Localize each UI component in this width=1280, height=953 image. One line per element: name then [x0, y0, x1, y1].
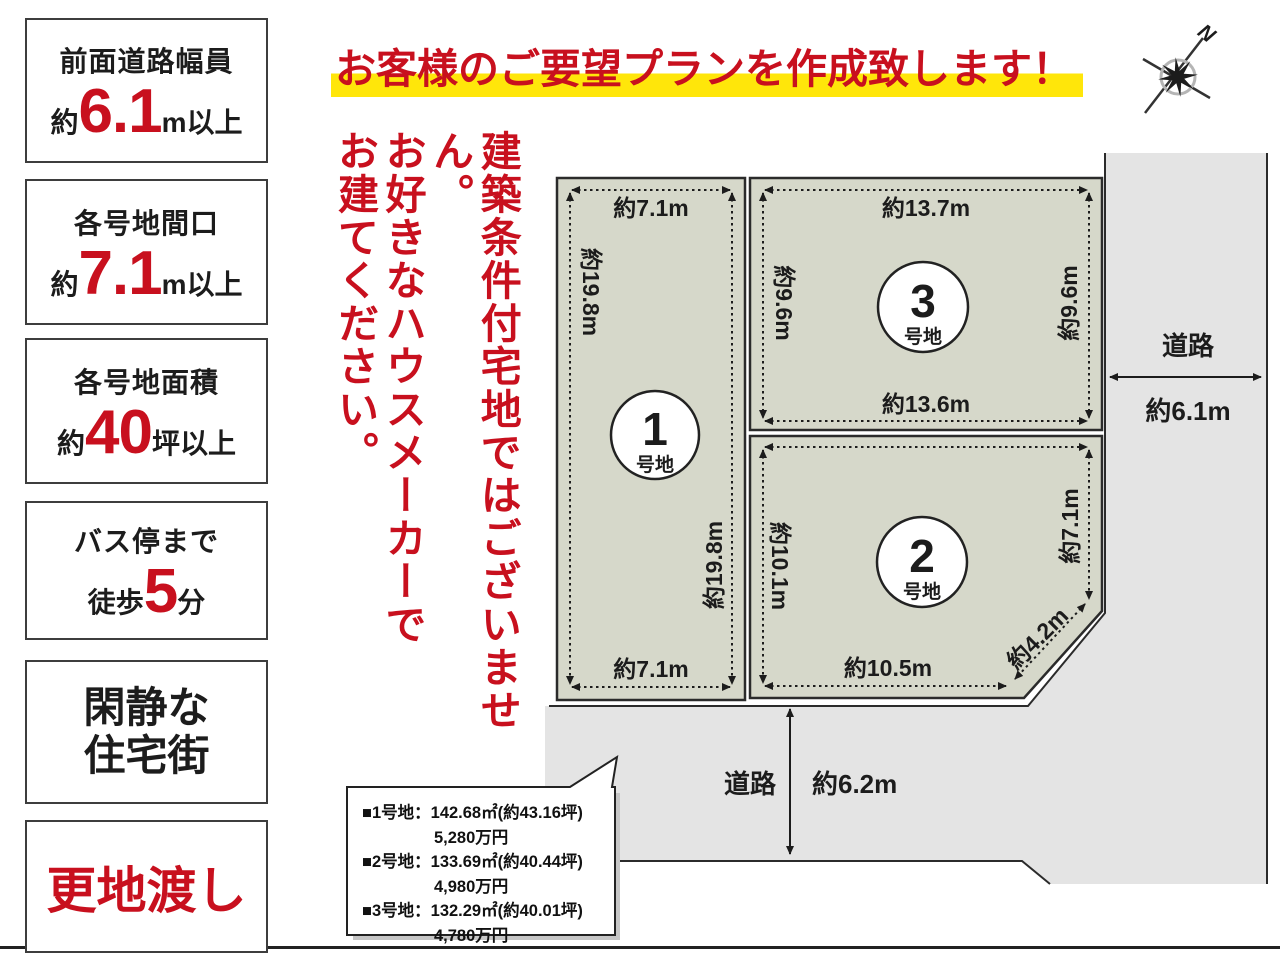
svg-text:2: 2	[909, 530, 935, 582]
plot-1-dim-top: 約7.1m	[613, 195, 688, 221]
road-bottom-width: 約6.2m	[812, 769, 897, 799]
plot-3-dim-right: 約9.6m	[1056, 265, 1082, 340]
feature-value: 約7.1m以上	[50, 246, 242, 303]
banner-text: お客様のご要望プランを作成致します！	[331, 46, 1083, 97]
notice-line-2: お好きなハウスメーカーで	[378, 130, 426, 770]
road-right-width: 約6.1m	[1145, 396, 1230, 426]
plot-1-dim-left: 約19.8m	[578, 248, 604, 336]
feature-red-text: 更地渡し	[47, 851, 247, 923]
vertical-notice: 建築条件付宅地ではございません。 お好きなハウスメーカーで お建てください。	[330, 130, 520, 770]
svg-text:号地: 号地	[636, 453, 674, 476]
feature-line: 閑静な	[83, 684, 209, 732]
svg-text:号地: 号地	[903, 580, 941, 603]
plot-2-dim-right: 約7.1m	[1057, 488, 1083, 563]
feature-title: 各号地間口	[74, 202, 219, 242]
lot-1-price: 5,280万円	[362, 826, 612, 851]
feature-line: 住宅街	[83, 732, 209, 780]
plot-1-badge: 1 号地	[611, 391, 699, 479]
feature-box-frontage: 各号地間口 約7.1m以上	[25, 179, 268, 325]
feature-title: バス停まで	[74, 520, 219, 560]
road-bottom-edge	[545, 861, 1050, 884]
feature-box-area: 各号地面積 約40坪以上	[25, 338, 268, 484]
svg-text:号地: 号地	[904, 325, 942, 348]
lot-1-spec: ■1号地：142.68㎡(約43.16坪)	[362, 801, 612, 826]
feature-title: 前面道路幅員	[59, 40, 233, 80]
compass-icon: N	[1143, 20, 1220, 113]
plot-2-badge: 2 号地	[877, 517, 967, 607]
svg-text:1: 1	[642, 403, 668, 455]
plot-3-dim-left: 約9.6m	[771, 265, 797, 340]
lot-3-spec: ■3号地：132.29㎡(約40.01坪)	[362, 899, 612, 924]
plot-2-dim-left: 約10.1m	[767, 522, 793, 610]
road-right-label: 道路	[1162, 331, 1215, 361]
feature-value: 徒歩5分	[88, 564, 206, 621]
feature-title: 各号地面積	[74, 361, 219, 401]
feature-box-vacant-land: 更地渡し	[25, 820, 268, 953]
feature-box-bus-stop: バス停まで 徒歩5分	[25, 501, 268, 640]
road-bottom-label: 道路	[724, 769, 777, 799]
plot-1-dim-bottom: 約7.1m	[613, 656, 688, 682]
plot-2-dim-bottom: 約10.5m	[844, 655, 932, 681]
feature-box-road-width: 前面道路幅員 約6.1m以上	[25, 18, 268, 163]
feature-value: 約6.1m以上	[50, 84, 242, 141]
feature-box-quiet-area: 閑静な 住宅街	[25, 660, 268, 804]
lot-3-price: 4,780万円	[362, 924, 612, 949]
plot-3-dim-top: 約13.7m	[882, 195, 970, 221]
lot-2-price: 4,980万円	[362, 875, 612, 900]
lot-2-spec: ■2号地：133.69㎡(約40.44坪)	[362, 850, 612, 875]
flyer-page: 約7.1m 約19.8m 約19.8m 約7.1m 約13.7m 約9.6m 約…	[0, 0, 1280, 953]
feature-value: 約40坪以上	[57, 405, 236, 462]
banner-headline: お客様のご要望プランを作成致します！	[331, 35, 1083, 95]
plot-1-dim-right: 約19.8m	[701, 521, 727, 609]
svg-text:3: 3	[910, 275, 936, 327]
notice-line-3: お建てください。	[330, 130, 378, 770]
plot-3-dim-bottom: 約13.6m	[882, 391, 970, 417]
lot-price-list: ■1号地：142.68㎡(約43.16坪) 5,280万円 ■2号地：133.6…	[362, 801, 612, 948]
notice-line-1: 建築条件付宅地ではございません。	[425, 130, 520, 770]
plot-3-badge: 3 号地	[878, 262, 968, 352]
